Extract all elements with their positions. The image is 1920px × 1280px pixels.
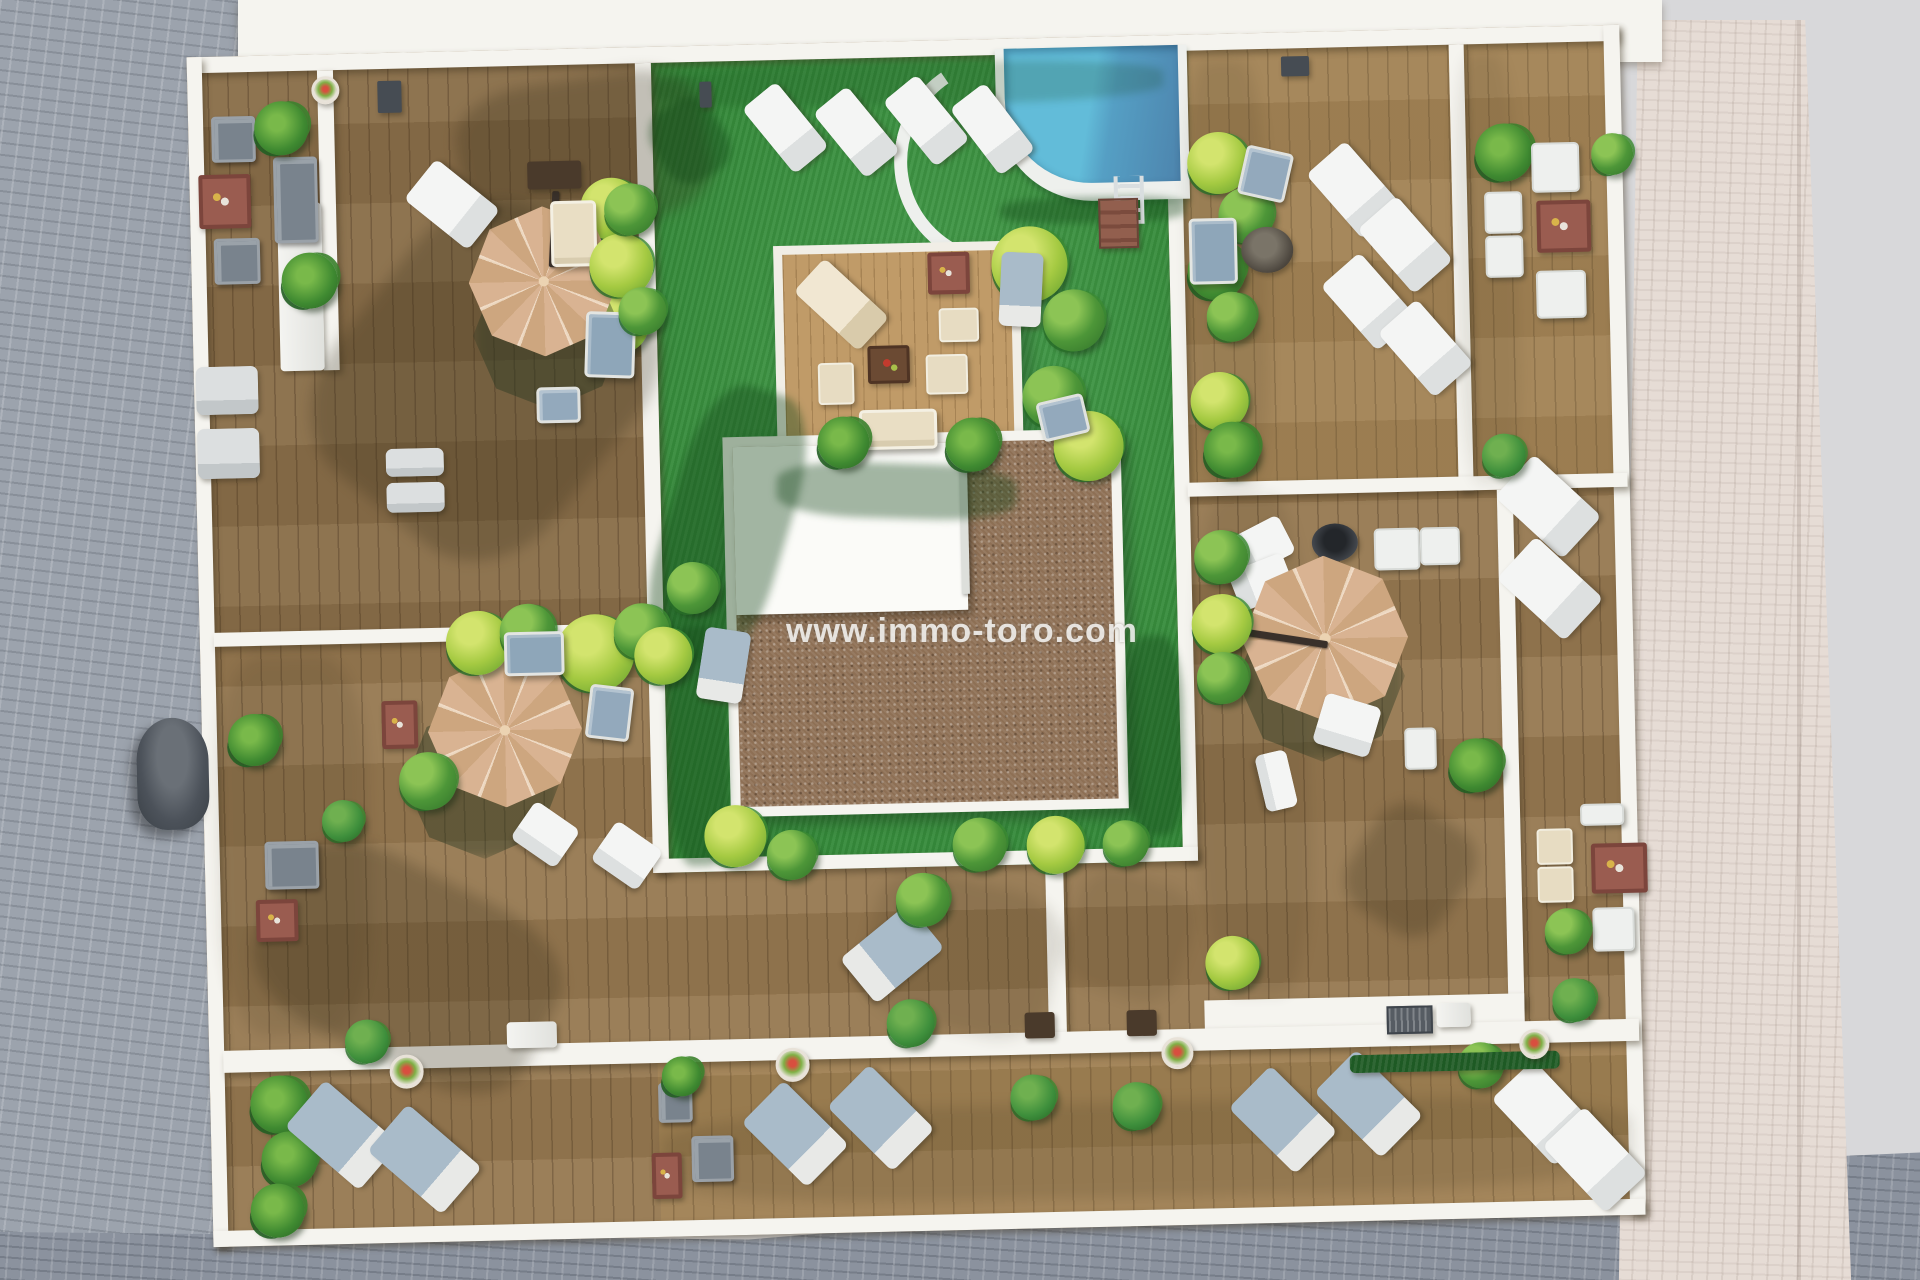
roof-vent (377, 81, 402, 114)
roof-vent (1281, 56, 1309, 77)
fire-table (1536, 200, 1591, 253)
sofa (504, 631, 565, 676)
armchair (926, 354, 969, 395)
armchair (691, 1135, 734, 1182)
sun-lounger (197, 428, 260, 479)
armchair (214, 238, 261, 285)
armchair (1374, 528, 1421, 571)
fire-table (256, 899, 299, 942)
sofa (859, 408, 938, 450)
bench (1126, 1010, 1157, 1037)
armchair (585, 684, 635, 743)
armchair (1580, 803, 1624, 826)
sofa (273, 156, 319, 243)
armchair (1404, 727, 1437, 770)
fire-table (652, 1152, 683, 1199)
bench (527, 160, 582, 189)
armchair (938, 307, 979, 342)
fire-table (1591, 842, 1648, 893)
armchair (264, 841, 319, 890)
armchair (1484, 191, 1523, 234)
watermark: www.immo-toro.com (742, 612, 1182, 651)
sofa (1189, 218, 1238, 285)
armchair (1537, 866, 1574, 903)
armchair (211, 116, 256, 163)
aerial-render: www.immo-toro.com (0, 0, 1920, 1280)
coffee-table (867, 345, 910, 384)
grill (1386, 1005, 1433, 1034)
side-table (927, 252, 970, 295)
core-shade (1124, 635, 1187, 836)
shrub (1591, 133, 1634, 176)
parked-car (136, 717, 211, 831)
armchair (1420, 527, 1461, 566)
armchair (818, 362, 855, 405)
sun-lounger (998, 252, 1043, 328)
armchair (1531, 142, 1580, 193)
side-table (381, 700, 418, 749)
fire-table (198, 174, 251, 229)
armchair (1592, 907, 1635, 952)
wall-bench (507, 1021, 558, 1048)
outdoor-sink (1436, 1003, 1471, 1028)
armchair (1485, 235, 1524, 278)
sun-lounger (196, 366, 259, 415)
roof-vent (699, 81, 712, 107)
armchair (536, 387, 581, 424)
armchair (1536, 828, 1573, 865)
bench (1024, 1012, 1055, 1039)
sun-lounger (386, 482, 445, 513)
sun-lounger (386, 448, 445, 477)
armchair (1536, 270, 1587, 319)
pool-steps (1098, 198, 1139, 249)
